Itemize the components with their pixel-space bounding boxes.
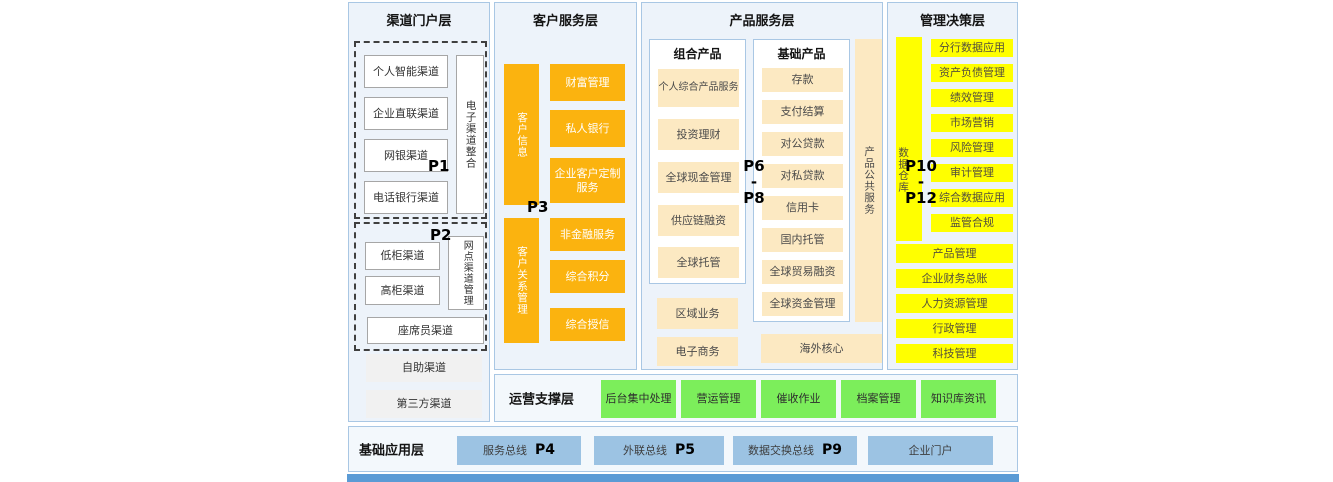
global-fund-mgmt: 全球资金管理: [762, 292, 843, 316]
risk-mgmt: 风险管理: [931, 139, 1013, 157]
architecture-diagram: 渠道门户层 个人智能渠道 企业直联渠道 网银渠道 电话银行渠道 电子渠道整合 P…: [0, 0, 1333, 482]
management-decision-panel: 管理决策层 数据仓库 P10 - P12 分行数据应用 资产负债管理 绩效管理 …: [887, 2, 1018, 370]
customer-service-title: 客户服务层: [495, 10, 636, 29]
operation-mgmt: 营运管理: [681, 380, 756, 418]
credit-card: 信用卡: [762, 196, 843, 220]
non-financial-service: 非金融服务: [550, 218, 625, 251]
data-warehouse-bar: 数据仓库: [896, 37, 922, 241]
customer-service-panel: 客户服务层 客户信息 P3 客户关系管理 财富管理 私人银行 企业客户定制服务 …: [494, 2, 637, 370]
p2-dashed-group: P2 低柜渠道 高柜渠道 网点渠道管理 座席员渠道: [354, 222, 487, 351]
product-mgmt: 产品管理: [896, 244, 1013, 263]
knowledge-base: 知识库资讯: [921, 380, 996, 418]
personal-smart-channel: 个人智能渠道: [364, 55, 448, 88]
service-bus-label: 服务总线: [483, 444, 527, 458]
phone-bank-channel: 电话银行渠道: [364, 181, 448, 214]
private-banking: 私人银行: [550, 110, 625, 147]
integrated-points: 综合积分: [550, 260, 625, 293]
p5-label: P5: [675, 442, 695, 460]
global-trade-finance: 全球贸易融资: [762, 260, 843, 284]
archive-mgmt: 档案管理: [841, 380, 916, 418]
combo-products-title: 组合产品: [650, 45, 745, 62]
p4-label: P4: [535, 442, 555, 460]
bottom-blue-strip: [347, 474, 1019, 482]
enterprise-portal-label: 企业门户: [909, 444, 953, 458]
p1-label: P1: [428, 159, 449, 175]
corporate-loan: 对公贷款: [762, 132, 843, 156]
personal-comprehensive-product: 个人综合产品服务: [658, 69, 739, 107]
marketing: 市场营销: [931, 114, 1013, 132]
product-public-service-bar: 产品公共服务: [855, 39, 882, 322]
collection-work: 催收作业: [761, 380, 836, 418]
foundation-app-title: 基础应用层: [359, 440, 424, 459]
backoffice-processing: 后台集中处理: [601, 380, 676, 418]
channel-portal-panel: 渠道门户层 个人智能渠道 企业直联渠道 网银渠道 电话银行渠道 电子渠道整合 P…: [348, 2, 490, 422]
p12-label: P12: [898, 191, 944, 207]
global-custody: 全球托管: [658, 247, 739, 278]
performance-mgmt: 绩效管理: [931, 89, 1013, 107]
third-party-channel: 第三方渠道: [366, 390, 482, 418]
management-decision-title: 管理决策层: [888, 10, 1017, 29]
high-counter-channel: 高柜渠道: [365, 276, 440, 305]
p8-label: P8: [738, 191, 770, 207]
overseas-core: 海外核心: [761, 334, 882, 363]
channel-portal-title: 渠道门户层: [349, 10, 489, 29]
wealth-mgmt: 财富管理: [550, 64, 625, 101]
p9-label: P9: [822, 442, 842, 460]
investment-wealth: 投资理财: [658, 119, 739, 150]
global-cash-mgmt: 全球现金管理: [658, 162, 739, 193]
asset-liability-mgmt: 资产负债管理: [931, 64, 1013, 82]
e-commerce: 电子商务: [657, 337, 738, 366]
enterprise-portal: 企业门户: [868, 436, 993, 465]
product-service-title: 产品服务层: [642, 10, 882, 29]
enterprise-finance-ledger: 企业财务总账: [896, 269, 1013, 288]
hr-mgmt: 人力资源管理: [896, 294, 1013, 313]
integrated-credit: 综合授信: [550, 308, 625, 341]
p10-p12-label: P10 - P12: [898, 159, 944, 206]
domestic-custody: 国内托管: [762, 228, 843, 252]
external-bus: 外联总线 P5: [594, 436, 724, 465]
p1-dashed-group: 个人智能渠道 企业直联渠道 网银渠道 电话银行渠道 电子渠道整合 P1: [354, 41, 487, 219]
p3-label: P3: [527, 200, 548, 216]
basic-products-title: 基础产品: [754, 45, 849, 62]
customer-relationship-bar: 客户关系管理: [504, 218, 539, 343]
branch-data-app: 分行数据应用: [931, 39, 1013, 57]
low-counter-channel: 低柜渠道: [365, 242, 440, 270]
personal-loan: 对私贷款: [762, 164, 843, 188]
tech-mgmt: 科技管理: [896, 344, 1013, 363]
operation-support-title: 运营支撑层: [509, 389, 574, 408]
p6-p8-label: P6 - P8: [738, 159, 770, 206]
self-service-channel: 自助渠道: [366, 354, 482, 382]
deposit: 存款: [762, 68, 843, 92]
combo-products-group: 组合产品 个人综合产品服务 投资理财 全球现金管理 供应链融资 全球托管: [649, 39, 746, 284]
customer-info-bar: 客户信息: [504, 64, 539, 205]
data-exchange-bus-label: 数据交换总线: [748, 444, 814, 458]
agent-channel: 座席员渠道: [367, 317, 484, 344]
corporate-direct-channel: 企业直联渠道: [364, 97, 448, 130]
corporate-custom-service: 企业客户定制服务: [550, 158, 625, 203]
foundation-app-panel: 基础应用层 服务总线 P4 外联总线 P5 数据交换总线 P9 企业门户: [348, 426, 1018, 472]
admin-mgmt: 行政管理: [896, 319, 1013, 338]
external-bus-label: 外联总线: [623, 444, 667, 458]
operation-support-panel: 运营支撑层 后台集中处理 营运管理 催收作业 档案管理 知识库资讯: [494, 374, 1018, 422]
data-exchange-bus: 数据交换总线 P9: [733, 436, 857, 465]
payment-settlement: 支付结算: [762, 100, 843, 124]
product-service-panel: 产品服务层 组合产品 个人综合产品服务 投资理财 全球现金管理 供应链融资 全球…: [641, 2, 883, 370]
p2-label: P2: [430, 228, 451, 244]
regulatory-compliance: 监管合规: [931, 214, 1013, 232]
service-bus: 服务总线 P4: [457, 436, 581, 465]
branch-channel-mgmt-bar: 网点渠道管理: [448, 236, 484, 310]
supply-chain-finance: 供应链融资: [658, 205, 739, 236]
e-channel-integration-bar: 电子渠道整合: [456, 55, 484, 214]
regional-business: 区域业务: [657, 298, 738, 329]
